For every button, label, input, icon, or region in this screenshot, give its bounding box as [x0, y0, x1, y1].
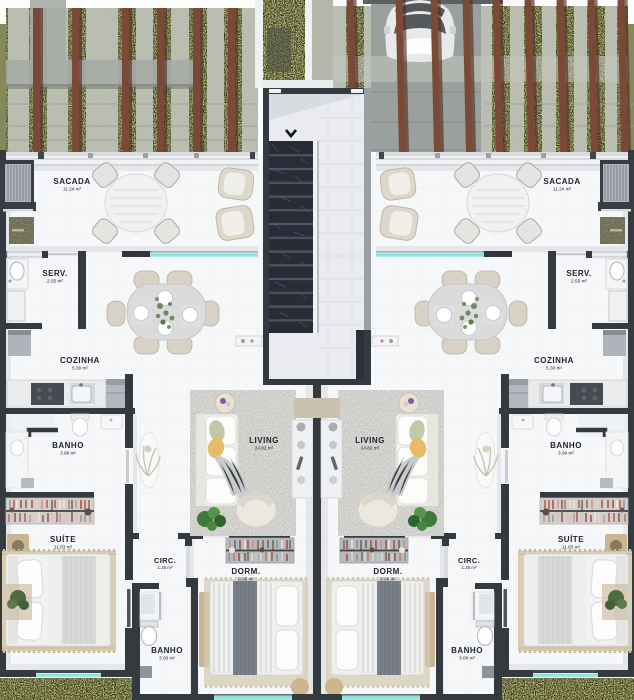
- svg-text:BANHO: BANHO: [52, 441, 84, 450]
- svg-text:LIVING: LIVING: [355, 436, 385, 445]
- svg-text:SUÍTE: SUÍTE: [558, 535, 584, 544]
- svg-text:LIVING: LIVING: [249, 436, 279, 445]
- svg-text:BANHO: BANHO: [151, 646, 183, 655]
- svg-text:1.25 m²: 1.25 m²: [158, 565, 173, 570]
- svg-text:DORM.: DORM.: [231, 567, 260, 576]
- svg-text:8.96 m²: 8.96 m²: [380, 577, 396, 582]
- svg-text:CIRC.: CIRC.: [458, 556, 480, 565]
- svg-text:3.00 m²: 3.00 m²: [159, 656, 175, 661]
- svg-text:COZINHA: COZINHA: [534, 356, 574, 365]
- svg-text:5.30 m²: 5.30 m²: [546, 366, 562, 371]
- svg-text:11.83 m²: 11.83 m²: [562, 545, 581, 550]
- svg-text:24.82 m²: 24.82 m²: [361, 446, 380, 451]
- svg-text:SERV.: SERV.: [42, 269, 67, 278]
- svg-text:11.83 m²: 11.83 m²: [54, 545, 73, 550]
- svg-text:8.96 m²: 8.96 m²: [238, 577, 254, 582]
- svg-text:SUÍTE: SUÍTE: [50, 535, 76, 544]
- svg-text:1.25 m²: 1.25 m²: [462, 565, 477, 570]
- svg-text:24.82 m²: 24.82 m²: [255, 446, 274, 451]
- svg-text:SACADA: SACADA: [543, 177, 580, 186]
- svg-text:2.55 m²: 2.55 m²: [47, 279, 63, 284]
- svg-text:2.55 m²: 2.55 m²: [571, 279, 587, 284]
- svg-text:COZINHA: COZINHA: [60, 356, 100, 365]
- svg-text:3.99 m²: 3.99 m²: [60, 451, 76, 456]
- svg-text:5.30 m²: 5.30 m²: [72, 366, 88, 371]
- svg-text:DORM.: DORM.: [373, 567, 402, 576]
- svg-text:BANHO: BANHO: [550, 441, 582, 450]
- svg-text:BANHO: BANHO: [451, 646, 483, 655]
- svg-text:CIRC.: CIRC.: [154, 556, 176, 565]
- svg-text:3.00 m²: 3.00 m²: [459, 656, 475, 661]
- svg-text:3.99 m²: 3.99 m²: [558, 451, 574, 456]
- svg-text:SACADA: SACADA: [53, 177, 90, 186]
- svg-text:11.24 m²: 11.24 m²: [63, 187, 82, 192]
- svg-text:11.24 m²: 11.24 m²: [553, 187, 572, 192]
- svg-text:SERV.: SERV.: [566, 269, 591, 278]
